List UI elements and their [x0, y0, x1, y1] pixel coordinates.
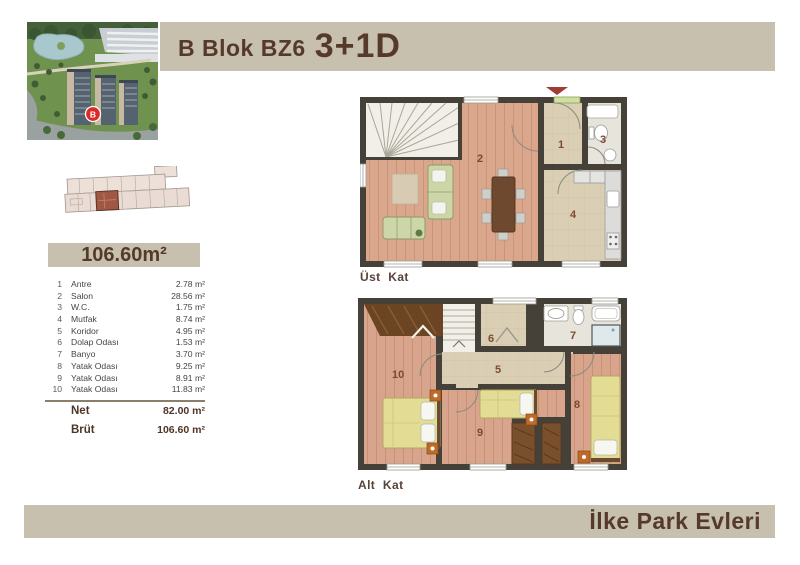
- title-bar: B Blok BZ6 3+1D: [160, 22, 775, 71]
- room-number-4: 4: [570, 209, 577, 221]
- stairs: [443, 304, 475, 352]
- room-area: 8.74 m²: [176, 314, 205, 324]
- brand-name: İlke Park Evleri: [589, 508, 761, 535]
- room-row: 10Yatak Odası11.83 m²: [45, 384, 205, 396]
- room-no: 3: [45, 302, 71, 312]
- room-row: 1Antre2.78 m²: [45, 279, 205, 291]
- room-row: 7Banyo3.70 m²: [45, 349, 205, 361]
- aerial-photo: B: [27, 22, 158, 140]
- brut-label: Brüt: [45, 424, 155, 436]
- upper-floor-plan: 2 1 3 4: [360, 85, 627, 269]
- room-no: 5: [45, 326, 71, 336]
- room-name: Mutfak: [71, 314, 176, 324]
- room-name: Antre: [71, 279, 176, 289]
- footer-brand-bar: İlke Park Evleri: [24, 505, 775, 538]
- net-label: Net: [45, 405, 155, 417]
- room-name: Dolap Odası: [71, 337, 176, 347]
- room-number-1: 1: [558, 139, 564, 151]
- brut-row: Brüt 106.60 m²: [45, 424, 205, 440]
- room-number-8: 8: [574, 399, 580, 411]
- block-b-marker: B: [86, 107, 101, 122]
- room-number-6: 6: [488, 333, 494, 345]
- room-number-7: 7: [570, 330, 576, 342]
- bedroom8-bed: [591, 376, 620, 462]
- room-area: 9.25 m²: [176, 361, 205, 371]
- kitchen-sink-icon: [607, 191, 619, 207]
- room-name: Banyo: [71, 349, 176, 359]
- total-area-value: 106.60m²: [81, 244, 167, 267]
- room-no: 4: [45, 314, 71, 324]
- toilet-icon: [573, 310, 584, 325]
- room-no: 1: [45, 279, 71, 289]
- brut-value: 106.60 m²: [155, 424, 205, 436]
- net-row: Net 82.00 m²: [45, 405, 205, 421]
- room-area: 11.83 m²: [172, 384, 205, 394]
- entry-door: [554, 97, 580, 103]
- room-area: 8.91 m²: [176, 373, 205, 383]
- plant-icon: [416, 230, 423, 237]
- toilet-icon: [589, 127, 594, 139]
- room-row: 8Yatak Odası9.25 m²: [45, 361, 205, 373]
- room-no: 2: [45, 291, 71, 301]
- lower-floor-plan: 10 6 7 5 9 8: [358, 296, 627, 472]
- room-name: Yatak Odası: [71, 373, 176, 383]
- room-number-2: 2: [477, 153, 483, 165]
- room-no: 6: [45, 337, 71, 347]
- lower-floor-label: Alt Kat: [358, 478, 403, 492]
- room-area: 1.75 m²: [176, 302, 205, 312]
- room-area: 2.78 m²: [176, 279, 205, 289]
- room-number-9: 9: [477, 427, 483, 439]
- unit-type: 3+1D: [315, 27, 401, 66]
- room-rows: 1Antre2.78 m²2Salon28.56 m²3W.C.1.75 m²4…: [45, 279, 205, 396]
- room-row: 9Yatak Odası8.91 m²: [45, 373, 205, 385]
- room-row: 6Dolap Odası1.53 m²: [45, 337, 205, 349]
- room-no: 7: [45, 349, 71, 359]
- room-row: 3W.C.1.75 m²: [45, 302, 205, 314]
- stairs: [366, 103, 462, 160]
- marker-letter: B: [90, 110, 96, 120]
- room-row: 5Koridor4.95 m²: [45, 326, 205, 338]
- room-name: Koridor: [71, 326, 176, 336]
- rug: [392, 174, 418, 204]
- table-divider: [45, 400, 205, 402]
- room-area: 4.95 m²: [176, 326, 205, 336]
- room-row: 2Salon28.56 m²: [45, 291, 205, 303]
- room-area: 28.56 m²: [171, 291, 205, 301]
- room-number-3: 3: [600, 134, 606, 146]
- room-number-5: 5: [495, 364, 501, 376]
- room-no: 10: [45, 384, 71, 394]
- room-name: W.C.: [71, 302, 176, 312]
- room-no: 8: [45, 361, 71, 371]
- sink-icon: [604, 149, 616, 161]
- block-title: B Blok BZ6: [178, 35, 306, 62]
- room-row: 4Mutfak8.74 m²: [45, 314, 205, 326]
- bedroom10-bed: [383, 398, 440, 448]
- room-area: 1.53 m²: [176, 337, 205, 347]
- sink-icon: [548, 309, 564, 319]
- total-area-badge: 106.60m²: [48, 243, 200, 267]
- entrance-arrow-icon: [546, 87, 568, 95]
- room-number-10: 10: [392, 369, 404, 381]
- room-name: Yatak Odası: [71, 361, 176, 371]
- shower-icon: [592, 325, 620, 346]
- stove-icon: [607, 233, 619, 249]
- room-name: Yatak Odası: [71, 384, 172, 394]
- net-value: 82.00 m²: [155, 405, 205, 417]
- antre-floor: [544, 103, 582, 164]
- room-no: 9: [45, 373, 71, 383]
- room-name: Salon: [71, 291, 171, 301]
- site-plan-thumbnail: [60, 166, 196, 226]
- room-area: 3.70 m²: [176, 349, 205, 359]
- room-list: 1Antre2.78 m²2Salon28.56 m²3W.C.1.75 m²4…: [45, 279, 205, 440]
- upper-floor-label: Üst Kat: [360, 270, 409, 284]
